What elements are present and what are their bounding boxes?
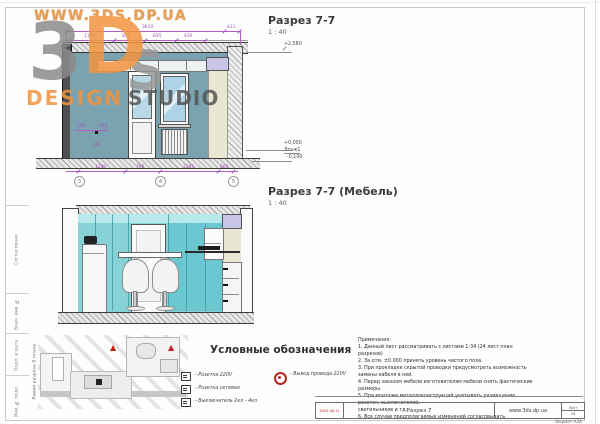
chair [152,259,179,293]
wall-dim-line [74,130,108,131]
transom-divider [158,60,159,70]
door-bottom-panel [132,122,152,154]
drawer-handle [223,300,228,302]
section-marker-right: ▲ [168,343,174,352]
grid-bubble-5: 5 [228,176,239,187]
grid-bubble-3: 3 [74,176,85,187]
right-wall-section [227,46,243,160]
dim-label: 3610 [142,25,153,30]
upper-cabinet [204,228,224,260]
section-marker-left: ▲ [110,343,116,352]
stamp-cell: Взам. инв. № [5,293,29,334]
drawer-handle [223,268,228,270]
legend-item-socket: - Розетка 220V [195,373,232,378]
furniture-section-title: Разрез 7-7 (Мебель) [268,185,398,198]
sheet-right-margin [595,0,596,424]
page-top-rule [0,2,600,3]
dim-label: 835 [153,34,161,39]
note-line: 2. За отм. ±0.000 принять уровень чистог… [358,358,536,365]
format-label: Формат А3А [500,419,582,424]
cabinet-line [83,253,104,254]
chair-base [126,306,145,311]
dim-label: 411 [227,25,235,30]
elevation-leader [252,161,292,162]
section-title: Разрез 7-7 [268,14,335,27]
dim-label: 540 [77,124,85,129]
plan-fixture [52,357,64,381]
stamp-column: Согласовано Взам. инв. № Подп. и дата Ин… [5,7,29,419]
glass-seam [112,214,113,311]
elevation-top-label: +2,580 [284,42,302,47]
dim-extension [66,31,67,43]
titleblock-date-cell: 2020.06.11 [316,403,344,418]
elevation-zero-label: +0,000 [284,141,302,146]
stamp-label-podp: Подп. и дата [5,334,29,376]
titleblock-title-cell: Разрез 7 [344,403,495,418]
titleblock-top-rule [315,396,583,397]
chair [122,259,149,293]
door-glass-pane [132,75,152,119]
glass-top-strip [78,214,240,223]
side-cabinet [82,244,107,313]
pelmet-box [206,57,229,71]
notes-title: Примечания: [358,337,536,344]
stamp-label-approved: Согласовано [5,206,29,294]
drawer-divider [223,294,239,295]
note-line: 1. Данный лист рассматривать с листами 1… [358,344,536,358]
curtain-panel [208,64,228,160]
note-line: 3. При прокладке скрытой проводки предус… [358,365,536,379]
radiator [161,129,188,155]
dim-label: 1285 [183,165,194,170]
stamp-cell: Согласовано [5,205,29,294]
network-socket-icon [181,385,191,394]
drawer-handle [223,284,228,286]
wardrobe-pelmet [222,214,242,229]
desk-surface [185,251,240,253]
stamp-cell: Инв. № подл. [5,375,29,424]
titleblock-sheet-cell: Лист 24 [562,403,584,418]
dim-label: 830 [99,124,107,129]
window [160,73,189,125]
elevation-leader [246,52,292,53]
stamp-label-vzam: Взам. инв. № [5,294,29,334]
dim-chain-top [66,31,240,32]
section-scale: 1 : 40 [268,28,287,36]
furniture-section-scale: 1 : 40 [268,199,287,207]
floor-level-label: Этаж1 [284,148,300,154]
dim-label: 790 [136,165,144,170]
window-sill [158,124,191,128]
dim-label: 1140 [84,34,95,39]
cabinet-shelf-line [205,243,221,244]
switch-icon [181,398,191,407]
dim-label: 835 [122,34,130,39]
plan-symbol [96,379,102,385]
legend-title: Условные обозначения [210,344,351,356]
socket-220v-icon [181,372,191,381]
wire-outlet-icon [274,372,287,385]
furniture-floor-slab [58,312,254,324]
plan-furniture [160,359,178,373]
title-block: 2020.06.11 Разрез 7 www.3ds.dp.ua Лист 2… [315,402,585,419]
window-glass [163,76,186,122]
dim-label: 1280 [95,165,106,170]
sheet-number: 24 [571,411,576,416]
dim-chain-bottom [66,171,238,172]
drawing-title: Разрез 7 [406,408,431,414]
furniture-left-wall [62,208,79,314]
dim-label: 600 [220,165,228,170]
note-line: 4. Перед заказом мебели изготовителям ме… [358,379,536,393]
desk-laptop [198,246,220,250]
drawing-date: 2020.06.11 [319,409,340,413]
chair-base [156,306,175,311]
legend-item-switch: - Выключатель 2кл - 4кл [195,399,257,404]
legend-item-network: - Розетка сетевая [195,386,240,391]
stamp-cell: Подп. и дата [5,333,29,376]
transom-divider [186,60,187,70]
plan-furniture [136,343,156,359]
glass-seam [186,223,187,311]
dim-label: 90 [94,143,100,148]
dim-label: 430 [184,34,192,39]
stamp-label-inv: Инв. № подл. [5,376,29,424]
drawing-sheet: Согласовано Взам. инв. № Подп. и дата Ин… [0,0,600,424]
socket-symbol [95,131,98,134]
appliance-on-cabinet [84,236,97,244]
dim-chain-mid [70,40,206,41]
legend-item-wire: - Вывод провода 220V [290,372,350,377]
elevation-below-label: -0,100 [287,155,302,160]
drawer-divider [223,278,239,279]
balcony-door [128,71,156,159]
table-top [118,252,182,258]
grid-bubble-4: 4 [155,176,166,187]
drawer-unit [222,262,242,313]
floor-plan-thumbnail: ▲ ▲ [38,335,188,409]
transom-divider [130,60,131,70]
studio-website: www.3ds.dp.ua [509,408,547,414]
titleblock-site-cell: www.3ds.dp.ua [495,403,562,418]
dim-extension [240,31,241,45]
